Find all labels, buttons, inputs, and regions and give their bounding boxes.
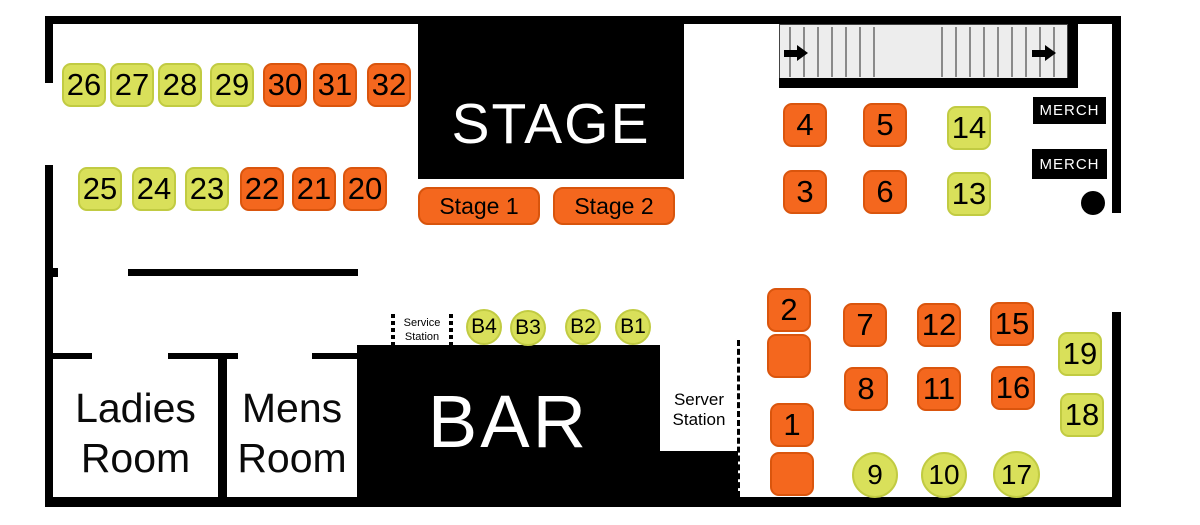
table-26[interactable]: 26 (62, 63, 106, 107)
table-21[interactable]: 21 (292, 167, 336, 211)
table-10[interactable]: 10 (921, 452, 967, 498)
stage-1-label: Stage 1 (439, 193, 518, 220)
table-5[interactable]: 5 (863, 103, 907, 147)
table-32[interactable]: 32 (367, 63, 411, 107)
table-6[interactable]: 6 (863, 170, 907, 214)
wall-right-lower (1112, 312, 1121, 507)
table-9[interactable]: 9 (852, 452, 898, 498)
stair-arrow-left-icon (784, 45, 808, 61)
table-B2[interactable]: B2 (565, 309, 601, 345)
table-30[interactable]: 30 (263, 63, 307, 107)
table-29[interactable]: 29 (210, 63, 254, 107)
server-station-dashed-line (737, 340, 740, 497)
table-31[interactable]: 31 (313, 63, 357, 107)
stage-2-button[interactable]: Stage 2 (553, 187, 675, 225)
table-24[interactable]: 24 (132, 167, 176, 211)
table-16[interactable]: 16 (991, 366, 1035, 410)
bar-label: BAR (428, 379, 589, 464)
merch-stand-2: MERCH (1032, 149, 1107, 179)
venue-floorplan: STAGE Stage 1 Stage 2 MERCH MERCH BAR Se… (0, 0, 1200, 525)
table-17[interactable]: 17 (993, 451, 1040, 498)
wall-right-upper (1112, 16, 1121, 213)
wall-bottom (45, 497, 1121, 507)
merch-stand-1: MERCH (1033, 97, 1106, 124)
table-4[interactable]: 4 (783, 103, 827, 147)
table-20[interactable]: 20 (343, 167, 387, 211)
table-7[interactable]: 7 (843, 303, 887, 347)
table-B1[interactable]: B1 (615, 309, 651, 345)
table-27[interactable]: 27 (110, 63, 154, 107)
table-14[interactable]: 14 (947, 106, 991, 150)
service-station-label: Service Station (391, 314, 453, 348)
restroom-divider-wall (218, 353, 227, 503)
restroom-wall-seg3 (312, 353, 358, 359)
bar-area: BAR (357, 345, 660, 497)
pillar-dot (1081, 191, 1105, 215)
restroom-wall-seg2 (168, 353, 238, 359)
stage-1-button[interactable]: Stage 1 (418, 187, 540, 225)
wall-left-lower (45, 165, 53, 507)
merch-stand-2-label: MERCH (1040, 156, 1100, 173)
table-23[interactable]: 23 (185, 167, 229, 211)
stair-arrow-right-icon (1032, 45, 1056, 61)
table-1[interactable]: 1 (770, 403, 814, 447)
table-blank[interactable] (770, 452, 814, 496)
table-B3[interactable]: B3 (510, 310, 546, 346)
stage-area: STAGE (418, 16, 684, 179)
stage-label: STAGE (452, 91, 651, 157)
wall-middle-segment (128, 269, 358, 276)
stage-2-label: Stage 2 (574, 193, 653, 220)
ladies-room-label: Ladies Room (53, 383, 218, 483)
merch-stand-1-label: MERCH (1040, 102, 1100, 119)
restroom-wall-seg1 (48, 353, 92, 359)
wall-left-upper (45, 16, 53, 83)
wall-left-nub (53, 268, 58, 277)
table-blank[interactable] (767, 334, 811, 378)
table-22[interactable]: 22 (240, 167, 284, 211)
table-15[interactable]: 15 (990, 302, 1034, 346)
server-station-label: Server Station (660, 390, 738, 430)
table-2[interactable]: 2 (767, 288, 811, 332)
table-3[interactable]: 3 (783, 170, 827, 214)
table-19[interactable]: 19 (1058, 332, 1102, 376)
table-8[interactable]: 8 (844, 367, 888, 411)
table-18[interactable]: 18 (1060, 393, 1104, 437)
stair-border-bottom (779, 78, 1078, 88)
mens-room-label: Mens Room (227, 383, 357, 483)
table-25[interactable]: 25 (78, 167, 122, 211)
table-B4[interactable]: B4 (466, 309, 502, 345)
table-11[interactable]: 11 (917, 367, 961, 411)
table-12[interactable]: 12 (917, 303, 961, 347)
table-13[interactable]: 13 (947, 172, 991, 216)
table-28[interactable]: 28 (158, 63, 202, 107)
stairway (779, 24, 1068, 80)
bar-extension (660, 451, 738, 497)
